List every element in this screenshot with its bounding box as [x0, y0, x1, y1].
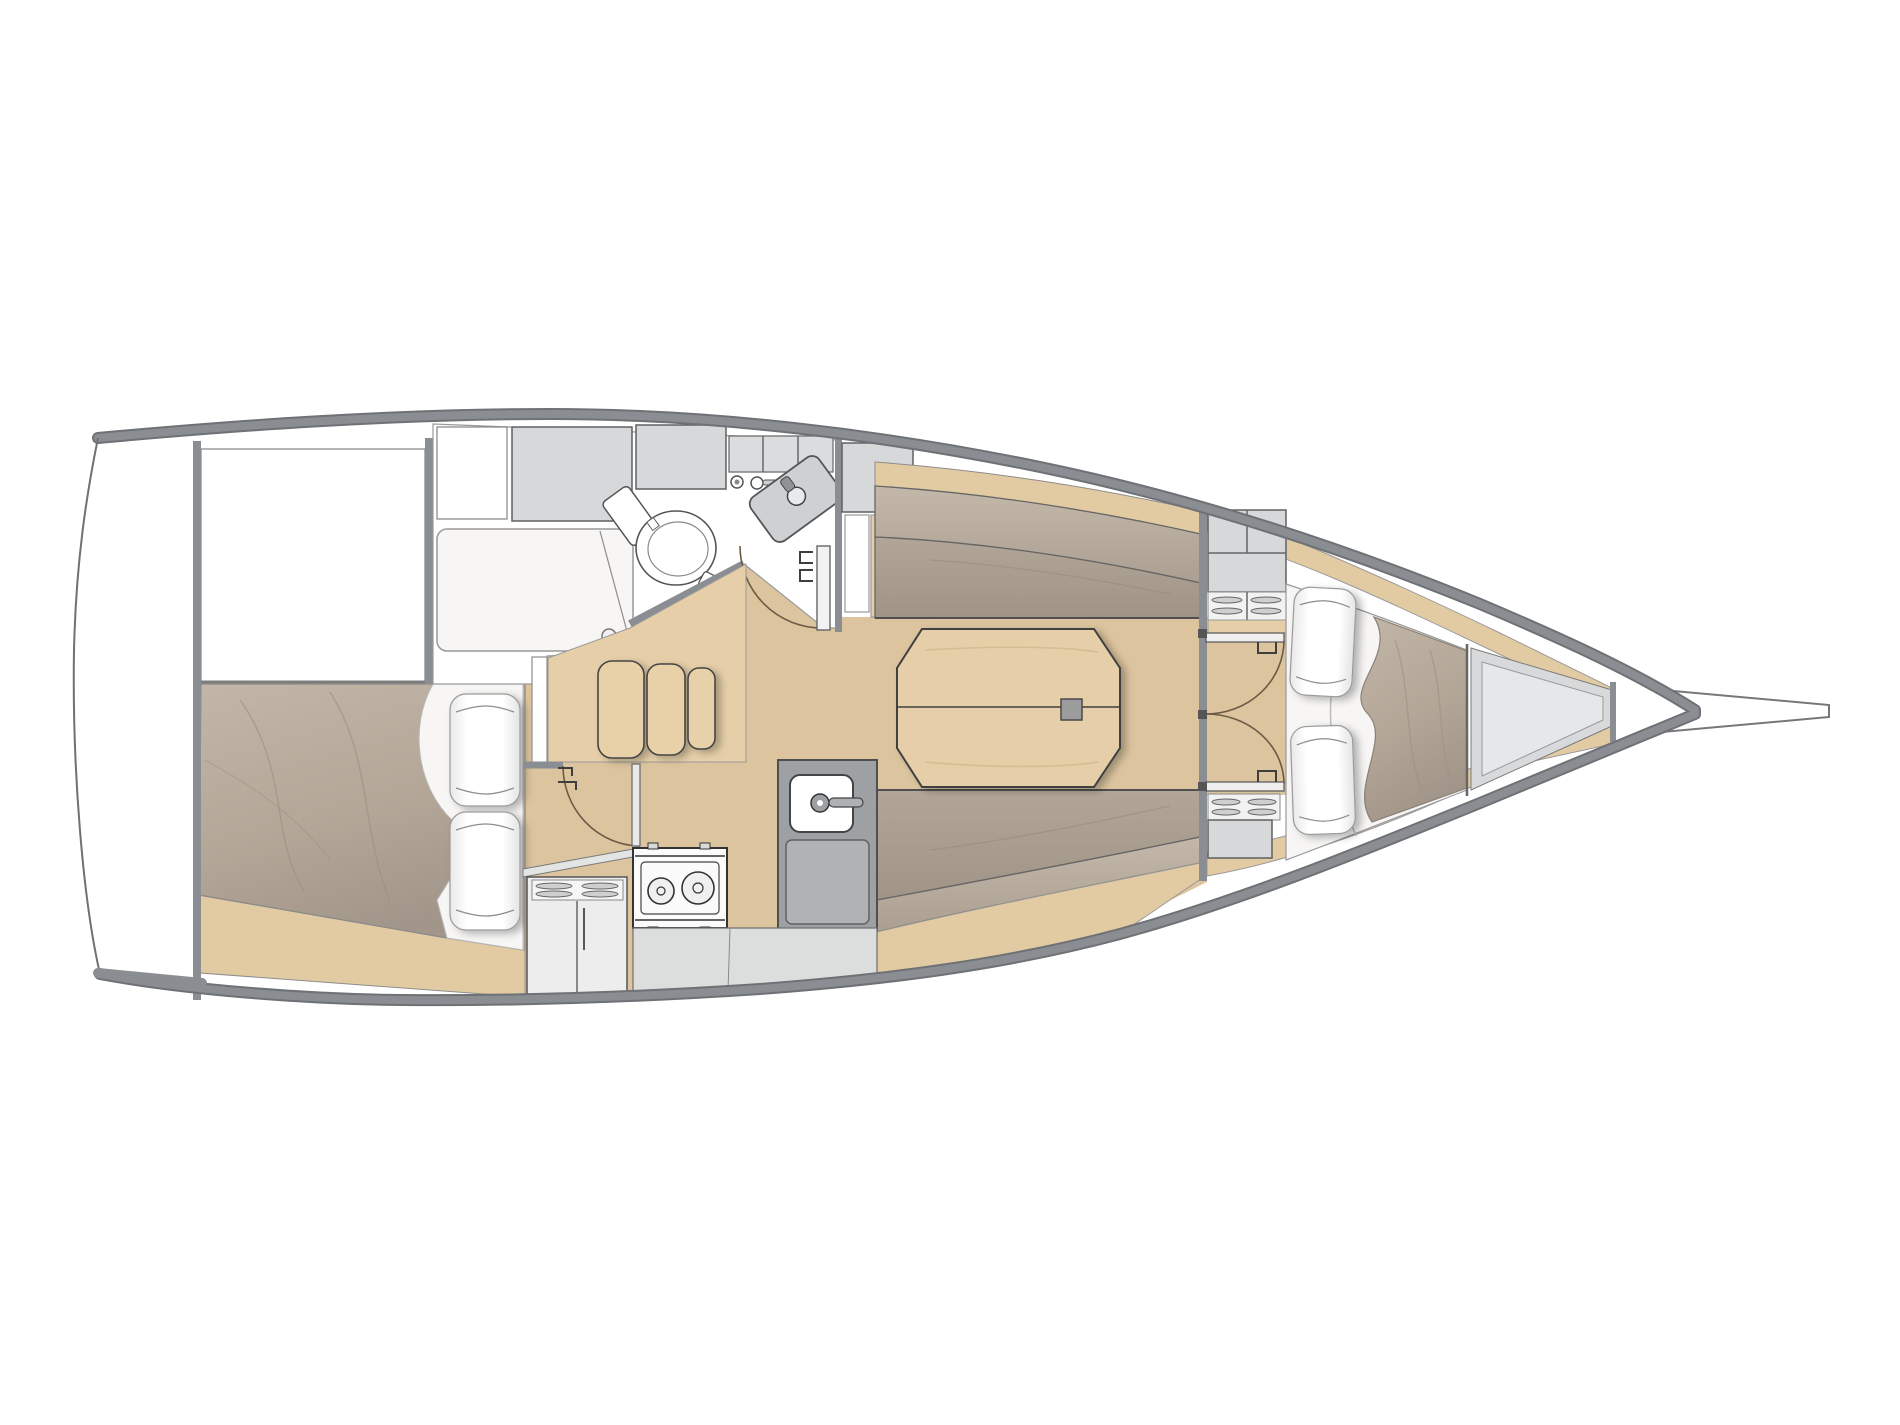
companionway-steps — [598, 661, 715, 758]
forward-cabin-floor — [1207, 617, 1292, 795]
head-cabinet-2 — [636, 425, 726, 489]
hinge-pin-3 — [1198, 782, 1207, 791]
burner-2 — [682, 872, 714, 904]
louvered-cabinet — [527, 877, 627, 995]
head-fwd-wall — [835, 438, 842, 632]
forward-shelf — [1208, 620, 1286, 633]
faucet-handle — [829, 798, 863, 807]
hinge-pin — [1198, 629, 1207, 638]
galley-sink-unit — [778, 760, 877, 930]
forward-louver-vent — [1208, 592, 1286, 620]
floor-plan-page — [0, 0, 1900, 1425]
head-door — [817, 546, 830, 630]
forward-bulkhead — [1199, 503, 1207, 881]
port-settee — [875, 462, 1205, 618]
forepeak-wall — [1610, 682, 1616, 742]
hinge-pin-2 — [1198, 710, 1207, 719]
stove — [633, 843, 727, 933]
forward-lower-vent — [1208, 794, 1280, 820]
salon-table — [897, 629, 1120, 787]
aft-cabin-fwd-wall — [425, 438, 433, 684]
wet-locker-door — [845, 515, 869, 612]
head-locker — [437, 427, 507, 519]
burner — [648, 878, 674, 904]
forward-door-2 — [1206, 782, 1284, 791]
table-fitting — [1061, 699, 1082, 720]
aft-cabin-door — [632, 764, 640, 846]
forward-door — [1206, 633, 1284, 642]
yacht-floor-plan — [0, 0, 1900, 1425]
aft-cabin-storage-area — [201, 449, 425, 684]
forward-lower-cabinet — [1208, 820, 1272, 858]
aft-cabin-outer-wall — [193, 441, 201, 1000]
